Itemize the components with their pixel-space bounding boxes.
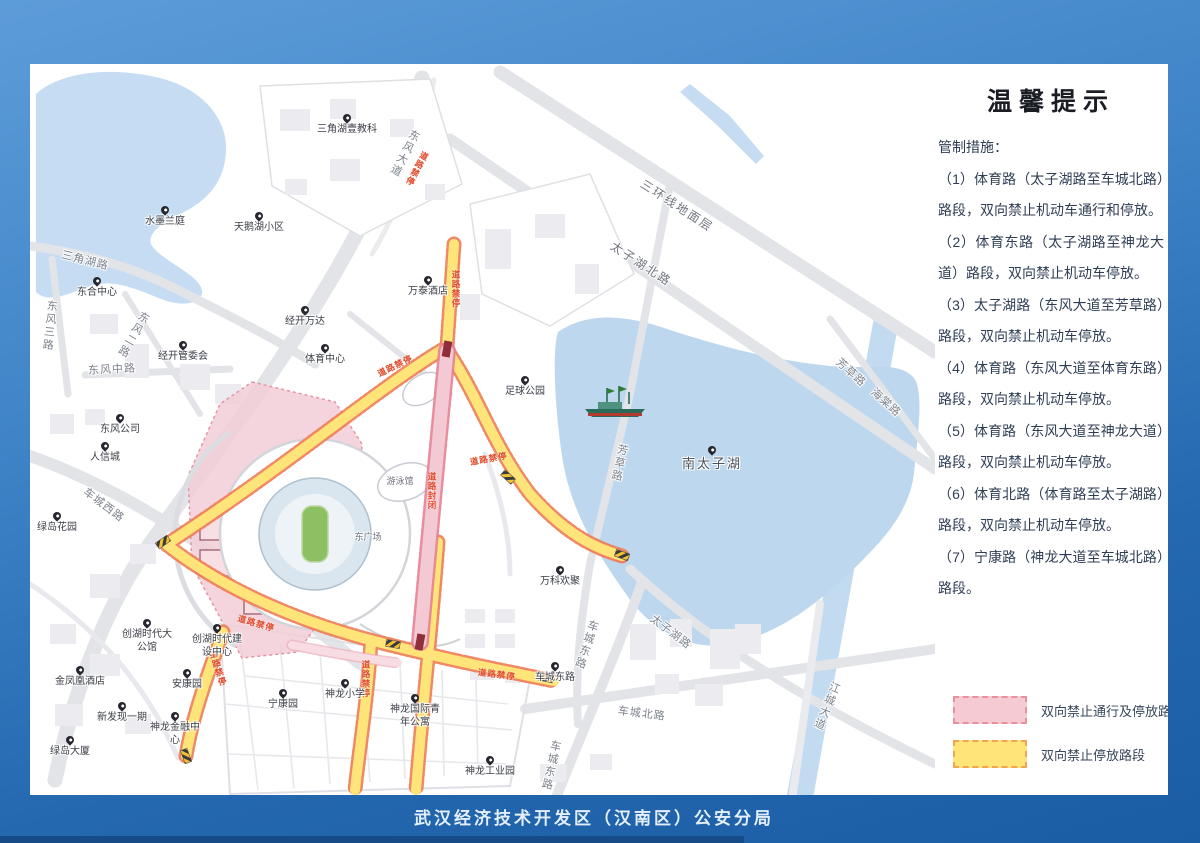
map-pin-icon xyxy=(253,210,264,221)
road-label: 车城东路 xyxy=(537,738,563,792)
map-pin-icon xyxy=(341,112,352,123)
legend-label: 双向禁止通行及停放路段 xyxy=(1041,701,1168,720)
no-parking-text: 道路禁停 xyxy=(477,666,516,683)
poi: 东风公司 xyxy=(100,414,140,437)
tips-item: （5）体育路（东风大道至神龙大道）路段，双向禁止机动车停放。 xyxy=(938,416,1164,479)
frame-bottom-strip xyxy=(0,836,744,843)
poi: 南太子湖 xyxy=(682,446,742,472)
poi-label: 金凤凰酒店 xyxy=(55,676,105,689)
poi: 绿岛大厦 xyxy=(50,736,90,759)
no-parking-text: 道路禁停 xyxy=(375,352,414,379)
poi: 水墨兰庭 xyxy=(145,206,185,229)
poi: 经开管委会 xyxy=(158,341,208,364)
poi-label: 创湖时代建设中心 xyxy=(192,634,242,659)
no-parking-text: 道路禁停 xyxy=(236,612,276,634)
poi-label: 万科欢聚 xyxy=(540,576,580,589)
poi: 安康园 xyxy=(172,669,202,692)
poi: 东合中心 xyxy=(77,277,117,300)
tips-item: （4）体育路（东风大道至体育东路）路段，双向禁止机动车停放。 xyxy=(938,353,1164,416)
poi-label: 三角湖壹教科 xyxy=(317,124,377,137)
no-parking-text: 道路禁停 xyxy=(469,449,509,467)
map-pin-icon xyxy=(339,677,350,688)
map-pin-icon xyxy=(484,754,495,765)
poi-label: 天鹅湖小区 xyxy=(234,222,284,235)
poi: 体育中心 xyxy=(305,344,345,367)
poi-label: 神龙工业园 xyxy=(465,766,515,779)
issuer-footer: 武汉经济技术开发区（汉南区）公安分局 xyxy=(30,804,1158,829)
map-pin-icon xyxy=(177,339,188,350)
poi: 新发现一期 xyxy=(97,702,147,725)
map-pin-icon xyxy=(211,622,222,633)
poi-label: 车城东路 xyxy=(535,672,575,685)
road-label: 车城西路 xyxy=(80,484,128,526)
map-pin-icon xyxy=(91,275,102,286)
legend-label: 双向禁止停放路段 xyxy=(1041,745,1145,764)
tips-item: （1）体育路（太子湖路至车城北路）路段，双向禁止机动车通行和停放。 xyxy=(938,164,1164,227)
map-pin-icon xyxy=(549,660,560,671)
map-pin-icon xyxy=(64,734,75,745)
poi: 人信城 xyxy=(90,442,120,465)
tips-title: 温馨提示 xyxy=(938,82,1164,118)
road-label: 三角湖路 xyxy=(60,246,110,273)
road-label: 车城东路 xyxy=(570,618,601,672)
road-label: 车城北路 xyxy=(617,702,667,724)
road-label: 江城大道 xyxy=(809,679,843,733)
tips-body: 管制措施： （1）体育路（太子湖路至车城北路）路段，双向禁止机动车通行和停放。 … xyxy=(938,132,1164,605)
map-sheet: 三角湖路 东风三路 东风二路 东风中路 车城西路 东风大道 三环线地面层 太子湖… xyxy=(30,64,1168,795)
tips-item: （3）太子湖路（东风大道至芳草路）路段，双向禁止机动车停放。 xyxy=(938,290,1164,353)
road-label: 海棠路 xyxy=(868,384,905,420)
poi: 天鹅湖小区 xyxy=(234,212,284,235)
map-pin-icon xyxy=(277,687,288,698)
road-closed-text: 道路封闭 xyxy=(426,472,438,510)
poi: 神龙国际青年公寓 xyxy=(390,694,440,729)
map-pin-icon xyxy=(51,510,62,521)
poi: 神龙金融中心 xyxy=(150,712,200,747)
poi: 万泰酒店 xyxy=(408,276,448,299)
tips-item: （7）宁康路（神龙大道至车城北路）路段。 xyxy=(938,542,1164,605)
poi-label: 人信城 xyxy=(90,452,120,465)
road-label: 芳草路 xyxy=(833,354,870,390)
poi: 宁康园 xyxy=(268,689,298,712)
poi: 金凤凰酒店 xyxy=(55,666,105,689)
tips-item: （6）体育北路（体育路至太子湖路）路段，双向禁止机动车停放。 xyxy=(938,479,1164,542)
poi-label: 绿岛大厦 xyxy=(50,746,90,759)
poi: 足球公园 xyxy=(505,376,545,399)
poi-label: 水墨兰庭 xyxy=(145,216,185,229)
map-pin-icon xyxy=(299,304,310,315)
poi: 创湖时代建设中心 xyxy=(192,624,242,659)
tips-item: （2）体育东路（太子湖路至神龙大道）路段，双向禁止机动车停放。 xyxy=(938,227,1164,290)
poi: 绿岛花园 xyxy=(37,512,77,535)
tips-intro: 管制措施： xyxy=(938,132,1164,164)
poi-label: 万泰酒店 xyxy=(408,286,448,299)
legend-swatch-yellow xyxy=(953,740,1027,768)
poi-label: 创湖时代大公馆 xyxy=(122,629,172,654)
poi: 三角湖壹教科 xyxy=(317,114,377,137)
road-label: 太子湖路 xyxy=(647,611,695,653)
poi: 车城东路 xyxy=(535,662,575,685)
facility-label: 东广场 xyxy=(354,532,381,543)
map-pin-icon xyxy=(422,274,433,285)
poi: 神龙工业园 xyxy=(465,756,515,779)
map-pin-icon xyxy=(519,374,530,385)
map-pin-icon xyxy=(141,617,152,628)
poi-label: 经开万达 xyxy=(285,316,325,329)
road-label: 三环线地面层 xyxy=(637,175,717,235)
map-pin-icon xyxy=(169,710,180,721)
map-pin-icon xyxy=(74,664,85,675)
poi-label: 体育中心 xyxy=(305,354,345,367)
road-label: 东风三路 xyxy=(39,299,60,352)
poi-label: 足球公园 xyxy=(505,386,545,399)
map-pin-icon xyxy=(409,692,420,703)
poi-label: 经开管委会 xyxy=(158,351,208,364)
poi-label: 绿岛花园 xyxy=(37,522,77,535)
poi-label: 新发现一期 xyxy=(97,712,147,725)
poi-label: 神龙金融中心 xyxy=(150,722,200,747)
poi: 神龙小学 xyxy=(325,679,365,702)
map-pin-icon xyxy=(181,667,192,678)
facility-label: 游泳馆 xyxy=(386,476,413,487)
map-pin-icon xyxy=(554,564,565,575)
road-label: 东风二路 xyxy=(113,308,153,361)
legend-swatch-pink xyxy=(953,696,1027,724)
no-parking-text: 道路禁停 xyxy=(450,270,462,308)
map-pin-icon xyxy=(116,700,127,711)
poi: 创湖时代大公馆 xyxy=(122,619,172,654)
map-pin-icon xyxy=(114,412,125,423)
poi-label: 宁康园 xyxy=(268,699,298,712)
road-label: 太子湖北路 xyxy=(607,237,675,289)
poi-label: 神龙小学 xyxy=(325,689,365,702)
poi-label: 神龙国际青年公寓 xyxy=(390,704,440,729)
legend-row-no-parking: 双向禁止停放路段 xyxy=(953,740,1145,768)
poi-label: 东风公司 xyxy=(100,424,140,437)
map-pin-icon xyxy=(319,342,330,353)
poi: 万科欢聚 xyxy=(540,566,580,589)
poi-label: 安康园 xyxy=(172,679,202,692)
poi: 经开万达 xyxy=(285,306,325,329)
map-pin-icon xyxy=(706,444,717,455)
legend-row-closed: 双向禁止通行及停放路段 xyxy=(953,696,1168,724)
lake-label: 南太子湖 xyxy=(682,456,742,472)
map-pin-icon xyxy=(99,440,110,451)
tips-panel: 温馨提示 管制措施： （1）体育路（太子湖路至车城北路）路段，双向禁止机动车通行… xyxy=(938,64,1164,795)
map-pin-icon xyxy=(159,204,170,215)
map-label-layer: 三角湖路 东风三路 东风二路 东风中路 车城西路 东风大道 三环线地面层 太子湖… xyxy=(30,64,935,795)
road-label: 东风中路 xyxy=(88,359,137,377)
poi-label: 东合中心 xyxy=(77,287,117,300)
road-label: 芳草路 xyxy=(607,442,631,483)
